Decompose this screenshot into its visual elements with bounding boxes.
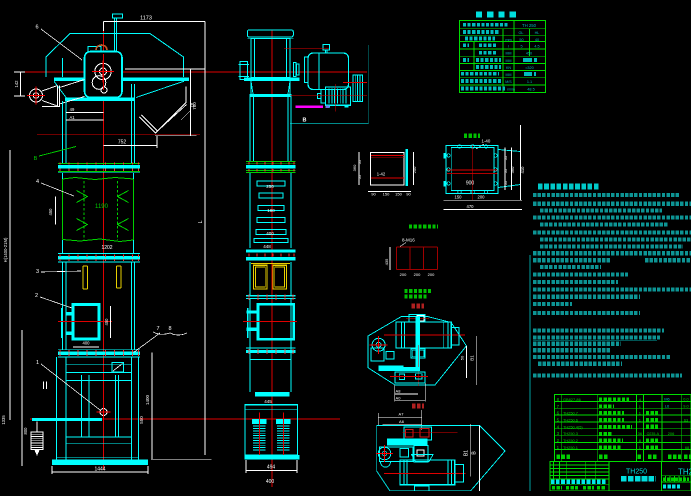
svg-text:MM: MM: [506, 52, 512, 56]
svg-text:TH250.4(5): TH250.4(5): [563, 424, 583, 429]
svg-text:50: 50: [519, 38, 523, 42]
svg-text:3: 3: [36, 269, 39, 275]
svg-text:8-M16: 8-M16: [402, 238, 415, 243]
svg-text:1: 1: [36, 360, 39, 366]
svg-text:760: 760: [192, 102, 197, 110]
svg-text:M6: M6: [664, 397, 670, 402]
svg-text:B1: B1: [470, 355, 475, 361]
svg-text:TH250.2: TH250.2: [563, 438, 578, 443]
svg-text:6: 6: [35, 25, 38, 31]
svg-text:450: 450: [48, 208, 53, 216]
svg-text:1-42: 1-42: [377, 172, 386, 177]
svg-text:90: 90: [371, 192, 376, 197]
svg-text:200: 200: [400, 272, 407, 277]
svg-text:B: B: [34, 156, 38, 162]
svg-text:1335: 1335: [1, 415, 6, 425]
svg-text:200: 200: [414, 272, 421, 277]
svg-text:55: 55: [503, 180, 508, 185]
svg-text:mm: mm: [505, 38, 511, 42]
svg-text:L: L: [198, 220, 204, 223]
svg-text:A6: A6: [399, 419, 405, 424]
svg-text:142: 142: [14, 80, 19, 88]
svg-text:HL: HL: [535, 31, 540, 35]
svg-text:r/min: r/min: [507, 88, 515, 92]
svg-text:B1: B1: [464, 450, 470, 456]
svg-text:1.1: 1.1: [527, 80, 532, 84]
svg-text:M/S: M/S: [505, 80, 512, 84]
svg-text:250: 250: [266, 184, 274, 189]
svg-text:9.0: 9.0: [683, 403, 689, 408]
svg-text:400: 400: [266, 479, 275, 485]
svg-text:752: 752: [118, 140, 127, 146]
svg-text:150: 150: [395, 192, 402, 197]
svg-text:H(1400-21M): H(1400-21M): [3, 237, 8, 262]
svg-text:150: 150: [455, 195, 463, 200]
svg-text:448: 448: [263, 244, 271, 249]
svg-text:1444: 1444: [94, 467, 105, 473]
svg-text:TH2: TH2: [678, 468, 691, 477]
svg-text:200: 200: [428, 272, 435, 277]
svg-text:445: 445: [264, 399, 272, 404]
svg-text:400: 400: [266, 231, 274, 236]
svg-text:48.5: 48.5: [527, 88, 534, 92]
svg-text:1-40: 1-40: [482, 139, 491, 144]
svg-text:400: 400: [83, 341, 91, 346]
svg-text:50: 50: [460, 355, 465, 360]
svg-text:4: 4: [36, 179, 39, 185]
svg-text:435: 435: [384, 258, 389, 265]
svg-text:90: 90: [406, 192, 411, 197]
svg-text:550: 550: [139, 416, 144, 424]
svg-text:63: 63: [684, 417, 688, 422]
svg-text:55: 55: [357, 159, 362, 164]
svg-text:36: 36: [638, 431, 643, 436]
svg-text:8: 8: [168, 326, 171, 332]
svg-text:KN: KN: [506, 66, 511, 70]
svg-text:A7: A7: [399, 412, 405, 417]
svg-text:TH 250: TH 250: [522, 23, 537, 28]
svg-text:1202: 1202: [101, 245, 112, 251]
svg-text:450: 450: [526, 52, 532, 56]
svg-text:470: 470: [467, 204, 475, 209]
svg-text:TH250.3: TH250.3: [563, 431, 578, 436]
svg-text:A8: A8: [396, 388, 402, 393]
svg-text:=320: =320: [525, 66, 534, 70]
svg-text:49: 49: [70, 107, 75, 112]
svg-text:55: 55: [357, 174, 362, 179]
svg-text:200: 200: [412, 166, 417, 173]
svg-text:A0: A0: [396, 395, 402, 400]
svg-text:TH250: TH250: [626, 469, 647, 476]
svg-text:40: 40: [535, 38, 539, 42]
svg-text:Q235-A: Q235-A: [647, 432, 660, 436]
svg-text:494: 494: [267, 465, 276, 471]
svg-text:B: B: [303, 118, 307, 124]
svg-text:800: 800: [23, 427, 28, 435]
svg-text:MM: MM: [506, 59, 512, 63]
svg-text:1190: 1190: [95, 204, 109, 210]
svg-text:68: 68: [685, 445, 689, 450]
svg-text:360: 360: [510, 166, 515, 173]
svg-text:450: 450: [104, 318, 109, 326]
svg-text:5: 5: [520, 44, 522, 48]
svg-text:4.5: 4.5: [534, 44, 539, 48]
svg-text:180: 180: [267, 208, 275, 213]
svg-text:TH250.6: TH250.6: [563, 417, 578, 422]
svg-text:A1: A1: [69, 115, 75, 120]
svg-text:TH250.1: TH250.1: [563, 445, 578, 450]
svg-text:MM: MM: [506, 73, 512, 77]
svg-text:55: 55: [503, 168, 508, 173]
svg-text:GB827-86: GB827-86: [563, 397, 581, 402]
svg-text:1173: 1173: [140, 16, 152, 22]
svg-text:55: 55: [503, 155, 508, 160]
svg-text:TH250.7: TH250.7: [563, 411, 578, 416]
svg-text:410: 410: [520, 166, 525, 174]
svg-text:360: 360: [352, 164, 357, 171]
svg-text:2: 2: [35, 293, 38, 299]
svg-text:1400: 1400: [145, 394, 150, 405]
svg-text:GL: GL: [518, 31, 523, 35]
svg-text:0.0: 0.0: [683, 397, 689, 402]
svg-text:7: 7: [156, 326, 159, 332]
svg-text:900: 900: [466, 181, 475, 187]
svg-text:L6: L6: [665, 403, 670, 408]
svg-text:206: 206: [668, 431, 675, 436]
svg-text:200: 200: [478, 195, 486, 200]
svg-text:150: 150: [383, 192, 390, 197]
